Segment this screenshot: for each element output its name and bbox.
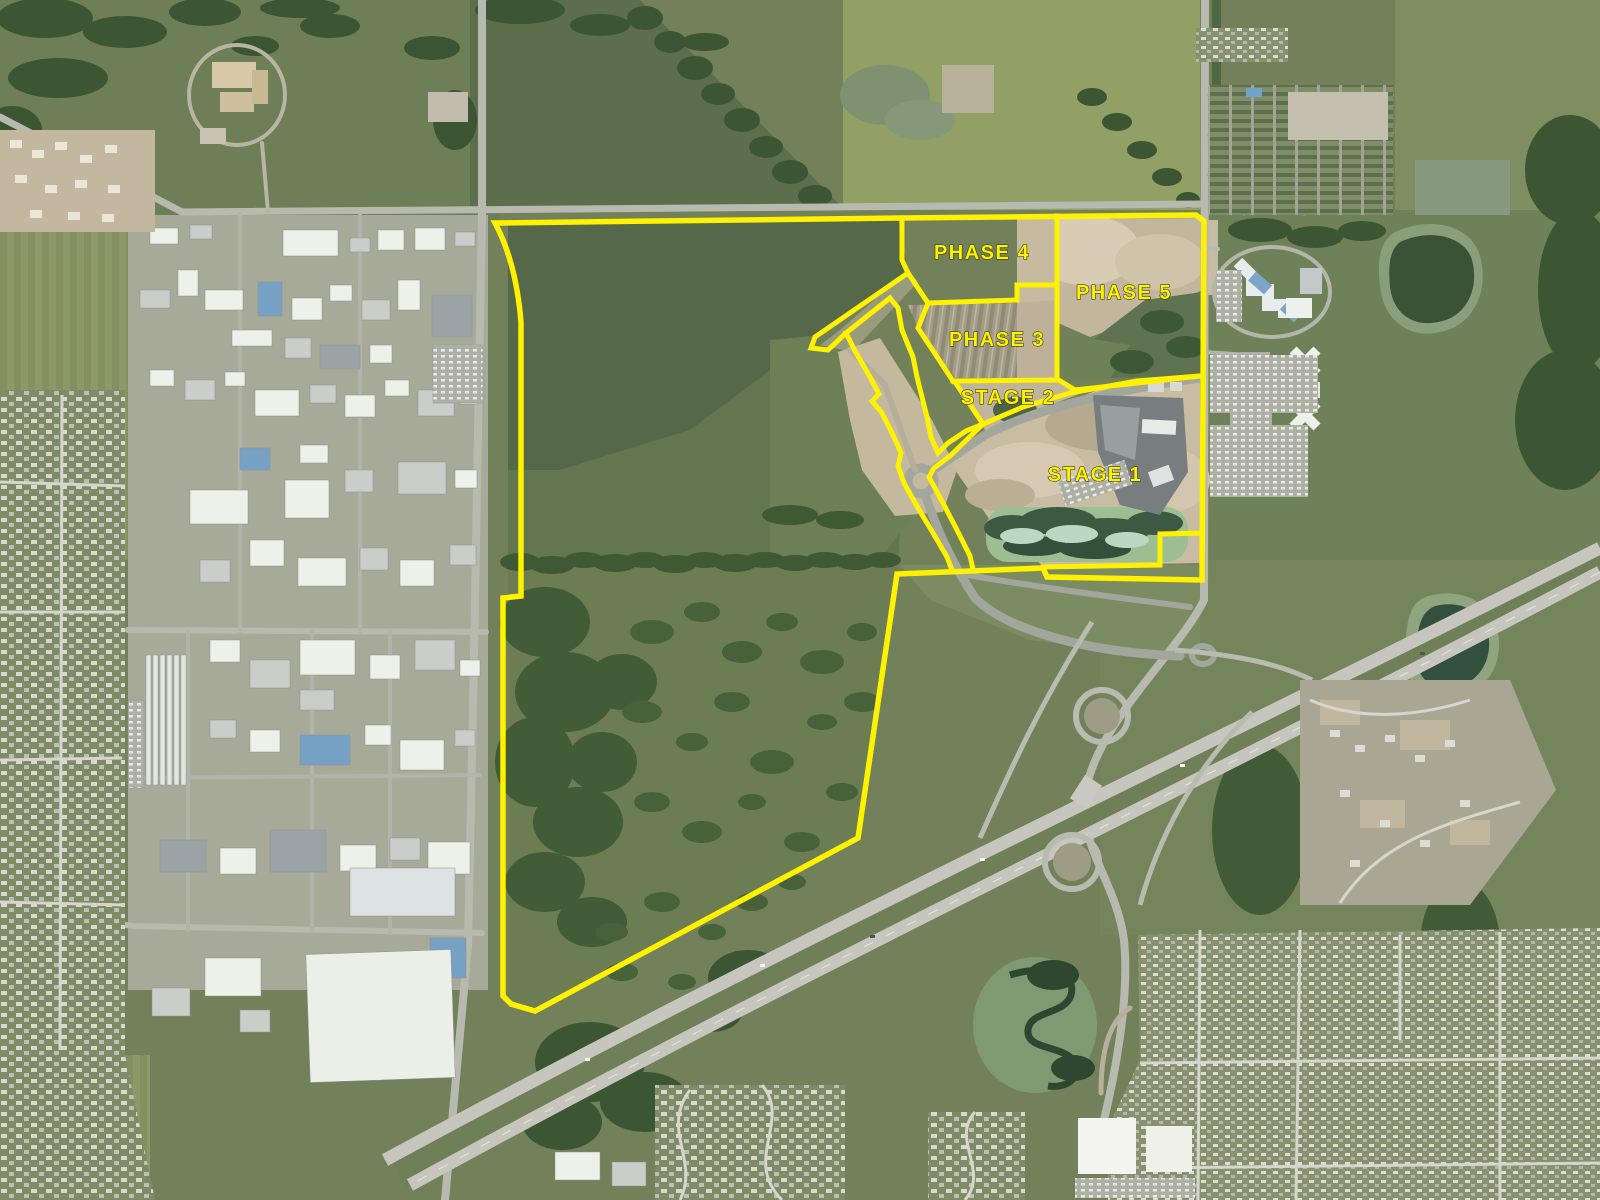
label-phase-5: PHASE 5 [1076,282,1172,304]
satellite-map: PHASE 4 PHASE 5 PHASE 3 STAGE 2 STAGE 1 [0,0,1600,1200]
map-viewport: PHASE 4 PHASE 5 PHASE 3 STAGE 2 STAGE 1 [0,0,1600,1200]
pond-northeast [1389,235,1474,323]
label-phase-4: PHASE 4 [934,242,1030,264]
label-phase-3: PHASE 3 [949,329,1045,351]
stage1-pond [984,507,1188,562]
label-stage-2: STAGE 2 [961,387,1056,409]
label-stage-1: STAGE 1 [1048,464,1143,486]
large-warehouse [306,949,455,1082]
phase3-south [953,380,1057,381]
nursery-pool [1246,88,1262,97]
bigbox-stores-south [1075,1118,1195,1198]
